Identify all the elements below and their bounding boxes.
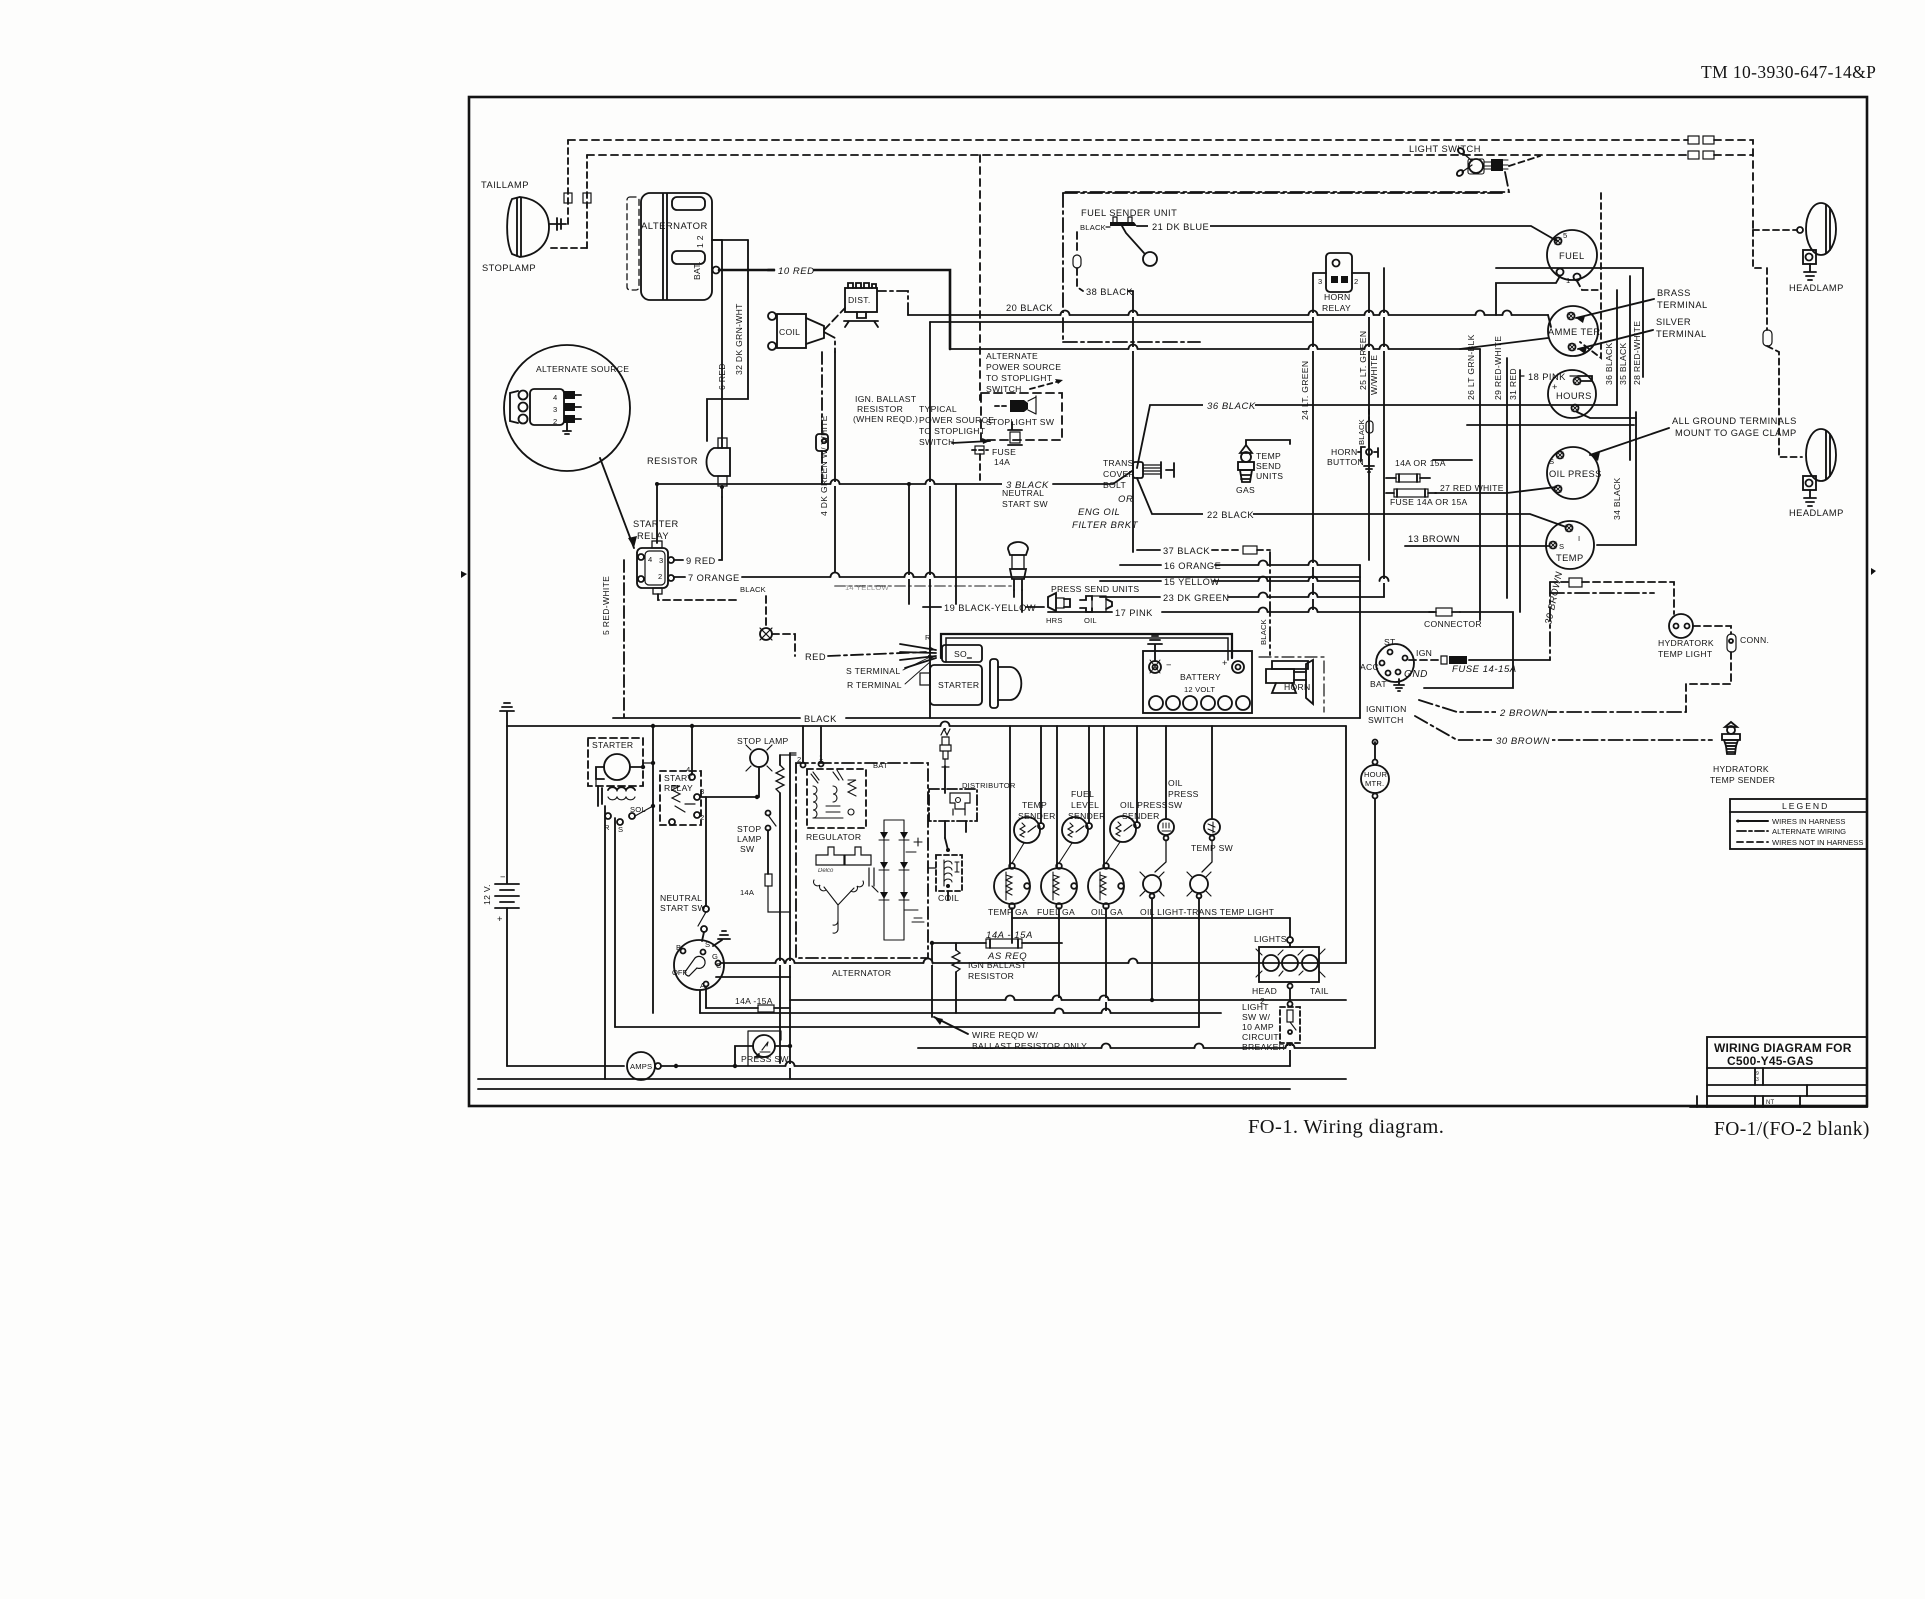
svg-text:POWER SOURCE: POWER SOURCE xyxy=(986,362,1061,372)
svg-text:28 RED-WHITE: 28 RED-WHITE xyxy=(1632,321,1642,385)
svg-text:SILVER: SILVER xyxy=(1656,317,1691,327)
svg-text:HORN: HORN xyxy=(1324,292,1351,302)
svg-text:PRESS SEND UNITS: PRESS SEND UNITS xyxy=(1051,584,1139,594)
svg-text:+: + xyxy=(1222,658,1228,668)
svg-text:SWITCH: SWITCH xyxy=(1368,715,1404,725)
svg-text:SW W/: SW W/ xyxy=(1242,1012,1271,1022)
svg-text:BAT: BAT xyxy=(873,761,888,770)
svg-text:BAT.: BAT. xyxy=(692,261,702,280)
svg-text:4 DK GREEN W/ WHITE: 4 DK GREEN W/ WHITE xyxy=(819,415,829,516)
svg-text:OIL: OIL xyxy=(1091,907,1106,917)
svg-text:5 RED-WHITE: 5 RED-WHITE xyxy=(601,576,611,635)
svg-text:S: S xyxy=(705,940,710,949)
svg-text:OIL PRESS: OIL PRESS xyxy=(1120,800,1168,810)
svg-text:FUEL: FUEL xyxy=(1037,907,1060,917)
svg-text:BREAKER: BREAKER xyxy=(1242,1042,1285,1052)
svg-text:GA: GA xyxy=(1062,907,1075,917)
svg-text:ALTERNATE WIRING: ALTERNATE WIRING xyxy=(1772,827,1846,836)
svg-text:I: I xyxy=(1578,534,1580,543)
svg-text:FUSE 14-15A: FUSE 14-15A xyxy=(1452,664,1517,675)
svg-text:TEMP: TEMP xyxy=(1556,553,1584,563)
svg-text:G: G xyxy=(712,952,718,961)
svg-text:BLACK: BLACK xyxy=(804,714,837,724)
svg-text:BOLT: BOLT xyxy=(1103,480,1126,490)
svg-text:NT: NT xyxy=(1766,1100,1775,1106)
svg-text:RELAY: RELAY xyxy=(664,783,693,793)
svg-text:4: 4 xyxy=(686,765,690,774)
svg-text:TM 10-3930-647-14&P: TM 10-3930-647-14&P xyxy=(1701,62,1876,82)
svg-text:25 LT. GREEN: 25 LT. GREEN xyxy=(1358,331,1368,390)
svg-text:SENDER: SENDER xyxy=(1018,811,1056,821)
svg-text:TEMP: TEMP xyxy=(1256,451,1281,461)
svg-text:MOUNT TO GAGE CLAMP: MOUNT TO GAGE CLAMP xyxy=(1675,428,1797,438)
svg-text:3: 3 xyxy=(1318,277,1322,286)
svg-text:IGNITION: IGNITION xyxy=(1366,704,1407,714)
svg-text:CONNECTOR: CONNECTOR xyxy=(1424,619,1482,629)
svg-text:HOURS: HOURS xyxy=(1556,391,1592,401)
svg-text:2 BROWN: 2 BROWN xyxy=(1499,708,1548,719)
svg-text:AMME TER: AMME TER xyxy=(1548,327,1601,337)
svg-text:14A: 14A xyxy=(740,888,755,897)
svg-text:SEND: SEND xyxy=(1256,461,1281,471)
svg-text:12 V.: 12 V. xyxy=(482,884,492,905)
svg-text:37 BLACK: 37 BLACK xyxy=(1163,546,1210,556)
svg-text:ENG OIL: ENG OIL xyxy=(1078,507,1120,518)
svg-text:35 BLACK: 35 BLACK xyxy=(1618,342,1628,385)
svg-text:LEVEL: LEVEL xyxy=(1071,800,1099,810)
svg-text:FO-1. Wiring diagram.: FO-1. Wiring diagram. xyxy=(1248,1116,1444,1138)
svg-text:9 RED: 9 RED xyxy=(686,556,716,566)
svg-text:FUSE 14A OR 15A: FUSE 14A OR 15A xyxy=(1390,497,1468,507)
svg-text:14A: 14A xyxy=(994,457,1010,467)
svg-text:R: R xyxy=(604,823,610,832)
svg-text:34 BLACK: 34 BLACK xyxy=(1612,477,1622,520)
svg-text:23 DK GREEN: 23 DK GREEN xyxy=(1163,593,1229,603)
svg-text:ALTERNATOR: ALTERNATOR xyxy=(641,221,708,232)
svg-text:Delco: Delco xyxy=(818,868,834,874)
svg-text:STARTER: STARTER xyxy=(938,680,979,690)
svg-text:BUTTON: BUTTON xyxy=(1327,457,1364,467)
svg-text:2: 2 xyxy=(553,417,557,426)
svg-text:10 RED: 10 RED xyxy=(778,266,815,277)
svg-text:COVER: COVER xyxy=(1103,469,1135,479)
svg-text:STOP: STOP xyxy=(737,824,761,834)
svg-text:OIL LIGHT-TRANS TEMP LIGHT: OIL LIGHT-TRANS TEMP LIGHT xyxy=(1140,907,1275,917)
svg-text:GA: GA xyxy=(1110,907,1123,917)
svg-text:S: S xyxy=(618,825,623,834)
svg-text:TERMINAL: TERMINAL xyxy=(1657,300,1708,310)
svg-text:6 RED: 6 RED xyxy=(717,363,727,390)
svg-text:2: 2 xyxy=(1354,277,1358,286)
svg-text:CIRCUIT: CIRCUIT xyxy=(1242,1032,1279,1042)
svg-text:WIRES IN HARNESS: WIRES IN HARNESS xyxy=(1772,817,1845,826)
svg-text:STOPLAMP: STOPLAMP xyxy=(482,263,536,273)
svg-text:12 VOLT: 12 VOLT xyxy=(1184,685,1215,694)
svg-text:POWER SOURCE: POWER SOURCE xyxy=(919,415,994,425)
svg-text:IGN: IGN xyxy=(1416,648,1432,658)
svg-text:ALTERNATE: ALTERNATE xyxy=(986,351,1038,361)
svg-text:BLACK: BLACK xyxy=(1357,419,1366,445)
svg-text:7 ORANGE: 7 ORANGE xyxy=(688,573,740,583)
svg-text:ST: ST xyxy=(1384,637,1396,647)
svg-text:36 BLACK: 36 BLACK xyxy=(1604,342,1614,385)
svg-text:+: + xyxy=(1552,382,1558,392)
svg-text:HOUR: HOUR xyxy=(1364,770,1387,779)
svg-text:REGULATOR: REGULATOR xyxy=(806,832,861,842)
svg-text:3: 3 xyxy=(1756,1077,1759,1083)
svg-text:15 YELLOW: 15 YELLOW xyxy=(1164,577,1220,587)
svg-text:HYDRATORK: HYDRATORK xyxy=(1658,638,1714,648)
svg-text:UNITS: UNITS xyxy=(1256,471,1283,481)
svg-text:FUEL: FUEL xyxy=(1071,789,1094,799)
svg-text:31 RED: 31 RED xyxy=(1508,368,1518,400)
svg-text:21 DK BLUE: 21 DK BLUE xyxy=(1152,222,1209,232)
svg-text:SWITCH: SWITCH xyxy=(986,384,1022,394)
svg-text:PRESS: PRESS xyxy=(1168,789,1199,799)
svg-text:14 YELLOW: 14 YELLOW xyxy=(845,583,890,592)
svg-text:GAS: GAS xyxy=(1236,485,1255,495)
svg-text:TAIL: TAIL xyxy=(1310,986,1329,996)
svg-text:32 DK GRN-WHT: 32 DK GRN-WHT xyxy=(734,303,744,375)
svg-text:TO STOPLIGHT: TO STOPLIGHT xyxy=(986,373,1053,383)
svg-text:HORN: HORN xyxy=(1284,682,1311,692)
svg-text:+: + xyxy=(497,914,503,924)
svg-text:HRS: HRS xyxy=(1046,616,1063,625)
svg-text:S: S xyxy=(1549,457,1554,466)
svg-text:16 ORANGE: 16 ORANGE xyxy=(1164,561,1221,571)
svg-text:SW: SW xyxy=(740,844,755,854)
svg-text:27 RED WHITE: 27 RED WHITE xyxy=(1440,483,1504,493)
svg-text:FILTER BRKT: FILTER BRKT xyxy=(1072,520,1139,531)
svg-text:36 BLACK: 36 BLACK xyxy=(1207,401,1256,412)
svg-text:BATTERY: BATTERY xyxy=(1180,672,1221,682)
svg-text:TEMP LIGHT: TEMP LIGHT xyxy=(1658,649,1713,659)
svg-text:1: 1 xyxy=(1566,276,1570,285)
svg-text:3: 3 xyxy=(553,405,557,414)
svg-text:DIST.: DIST. xyxy=(848,295,871,305)
svg-text:OIL PRESS: OIL PRESS xyxy=(1549,469,1602,479)
svg-text:38 BLACK: 38 BLACK xyxy=(1086,287,1133,297)
svg-text:RELAY: RELAY xyxy=(1322,303,1351,313)
svg-text:2: 2 xyxy=(700,813,704,822)
svg-text:FUEL: FUEL xyxy=(1559,251,1585,261)
svg-text:TO STOPLIGHT: TO STOPLIGHT xyxy=(919,426,986,436)
svg-text:LAMP: LAMP xyxy=(737,834,762,844)
svg-text:AMPS: AMPS xyxy=(630,1062,652,1071)
svg-text:3: 3 xyxy=(659,556,663,565)
svg-text:13 BROWN: 13 BROWN xyxy=(1408,534,1460,544)
svg-text:CONN.: CONN. xyxy=(1740,635,1769,645)
svg-text:TEMP: TEMP xyxy=(988,907,1013,917)
svg-text:TEMP SENDER: TEMP SENDER xyxy=(1710,775,1775,785)
svg-text:LIGHT: LIGHT xyxy=(1242,1002,1269,1012)
svg-text:BLACK: BLACK xyxy=(740,585,766,594)
svg-text:C500-Y45-GAS: C500-Y45-GAS xyxy=(1727,1054,1813,1068)
svg-text:10 AMP: 10 AMP xyxy=(1242,1022,1274,1032)
svg-text:TEMP: TEMP xyxy=(1022,800,1047,810)
svg-text:HEADLAMP: HEADLAMP xyxy=(1789,508,1844,518)
svg-text:BLACK: BLACK xyxy=(1259,619,1268,645)
svg-text:4: 4 xyxy=(553,393,557,402)
svg-text:1 2: 1 2 xyxy=(695,235,705,248)
svg-text:STARTER: STARTER xyxy=(592,740,633,750)
svg-text:SENDER: SENDER xyxy=(1068,811,1106,821)
svg-text:COIL: COIL xyxy=(779,327,800,337)
svg-text:ALTERNATOR: ALTERNATOR xyxy=(832,968,891,978)
svg-text:ALL GROUND TERMINALS: ALL GROUND TERMINALS xyxy=(1672,416,1797,426)
svg-text:OIL: OIL xyxy=(1084,616,1097,625)
svg-text:−: − xyxy=(500,872,506,882)
svg-text:RED: RED xyxy=(805,652,826,662)
svg-text:(WHEN REQD.): (WHEN REQD.) xyxy=(853,414,918,424)
svg-text:3: 3 xyxy=(700,787,704,796)
svg-text:22 BLACK: 22 BLACK xyxy=(1207,510,1254,520)
svg-text:RELAY: RELAY xyxy=(637,531,669,541)
svg-text:SW: SW xyxy=(1168,800,1183,810)
svg-text:DISTRIBUTOR: DISTRIBUTOR xyxy=(962,781,1016,790)
svg-text:TERMINAL: TERMINAL xyxy=(1656,329,1707,339)
svg-text:S TERMINAL: S TERMINAL xyxy=(846,666,900,676)
svg-text:39 BROWN: 39 BROWN xyxy=(1543,570,1565,625)
svg-text:HEAD: HEAD xyxy=(1252,986,1277,996)
svg-text:20 BLACK: 20 BLACK xyxy=(1006,303,1053,313)
svg-text:NEUTRAL: NEUTRAL xyxy=(1002,488,1044,498)
svg-text:HORN: HORN xyxy=(1331,447,1358,457)
svg-text:OR: OR xyxy=(1118,494,1133,505)
svg-text:4: 4 xyxy=(648,555,652,564)
svg-text:26 LT GRN-BLK: 26 LT GRN-BLK xyxy=(1466,334,1476,400)
svg-text:OIL: OIL xyxy=(1168,778,1183,788)
svg-text:24 LT. GREEN: 24 LT. GREEN xyxy=(1300,361,1310,420)
svg-text:29 RED-WHITE: 29 RED-WHITE xyxy=(1493,336,1503,400)
svg-text:TAILLAMP: TAILLAMP xyxy=(481,180,529,190)
svg-text:RESISTOR: RESISTOR xyxy=(857,404,903,414)
svg-text:STARTER: STARTER xyxy=(633,519,679,529)
svg-text:SWITCH: SWITCH xyxy=(919,437,955,447)
svg-text:HEADLAMP: HEADLAMP xyxy=(1789,283,1844,293)
svg-text:NEUTRAL: NEUTRAL xyxy=(660,893,702,903)
svg-text:−: − xyxy=(1166,660,1172,670)
svg-text:HYDRATORK: HYDRATORK xyxy=(1713,764,1769,774)
svg-text:GND: GND xyxy=(1404,669,1428,680)
svg-text:18 PINK: 18 PINK xyxy=(1528,372,1566,382)
svg-text:MTR.: MTR. xyxy=(1365,779,1384,788)
svg-text:RESISTOR: RESISTOR xyxy=(647,456,698,466)
svg-text:STOPLIGHT SW: STOPLIGHT SW xyxy=(986,417,1055,427)
svg-text:R TERMINAL: R TERMINAL xyxy=(847,680,902,690)
svg-text:START SW: START SW xyxy=(1002,499,1048,509)
svg-text:LIGHTS: LIGHTS xyxy=(1254,934,1287,944)
svg-text:S: S xyxy=(1559,542,1564,551)
svg-text:ACC: ACC xyxy=(1360,662,1379,672)
svg-text:WIRE REQD W/: WIRE REQD W/ xyxy=(972,1030,1038,1040)
svg-text:W/WHITE: W/WHITE xyxy=(1369,355,1379,395)
svg-text:START SW: START SW xyxy=(660,903,706,913)
svg-text:FO-1/(FO-2 blank): FO-1/(FO-2 blank) xyxy=(1714,1119,1870,1140)
svg-text:STOP LAMP: STOP LAMP xyxy=(737,736,789,746)
svg-text:5: 5 xyxy=(1563,231,1567,240)
svg-text:TRANS: TRANS xyxy=(1103,458,1134,468)
svg-text:BLACK: BLACK xyxy=(1080,223,1106,232)
svg-text:FUSE: FUSE xyxy=(992,447,1016,457)
svg-text:BRASS: BRASS xyxy=(1657,288,1691,298)
svg-text:LEGEND: LEGEND xyxy=(1782,801,1829,811)
svg-text:LIGHT SWITCH: LIGHT SWITCH xyxy=(1409,144,1481,154)
svg-text:SO‗: SO‗ xyxy=(954,649,972,659)
svg-text:AS REQ: AS REQ xyxy=(987,951,1027,962)
svg-text:2: 2 xyxy=(658,572,662,581)
svg-text:R: R xyxy=(925,633,931,642)
svg-text:TYPICAL: TYPICAL xyxy=(919,404,957,414)
svg-text:30 BROWN: 30 BROWN xyxy=(1496,736,1550,747)
svg-text:ALTERNATE SOURCE: ALTERNATE SOURCE xyxy=(536,364,629,374)
svg-text:RESISTOR: RESISTOR xyxy=(968,971,1014,981)
svg-text:WIRING DIAGRAM FOR: WIRING DIAGRAM FOR xyxy=(1714,1041,1852,1055)
svg-text:19 BLACK-YELLOW: 19 BLACK-YELLOW xyxy=(944,603,1036,613)
svg-text:GA: GA xyxy=(1015,907,1028,917)
svg-text:BAT: BAT xyxy=(1370,679,1387,689)
svg-text:BALLAST RESISTOR ONLY: BALLAST RESISTOR ONLY xyxy=(972,1041,1087,1051)
svg-text:WIRES NOT IN HARNESS: WIRES NOT IN HARNESS xyxy=(1772,838,1863,847)
svg-text:17 PINK: 17 PINK xyxy=(1115,608,1153,618)
svg-text:IGN. BALLAST: IGN. BALLAST xyxy=(855,394,917,404)
